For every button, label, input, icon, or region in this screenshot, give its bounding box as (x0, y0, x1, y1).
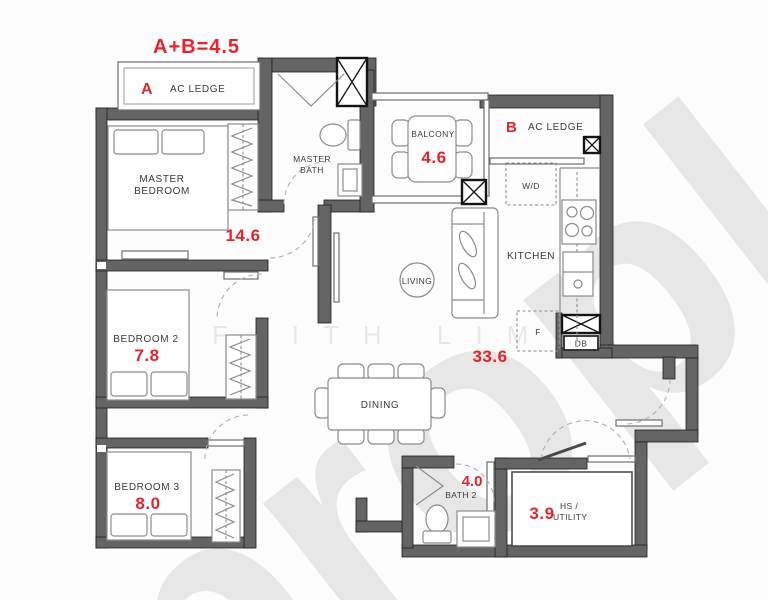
ac-ledge-a-letter: A (141, 81, 153, 98)
master-bath-label-2: BATH (300, 165, 324, 175)
dining-label: DINING (361, 400, 400, 411)
bath2-area: 4.0 (462, 473, 483, 490)
shaft-box (337, 58, 367, 106)
console-table (122, 251, 188, 259)
db-box: DB (564, 336, 598, 350)
wardrobe (212, 470, 240, 542)
balcony-sliding-door (372, 196, 464, 203)
bath2-label: BATH 2 (445, 490, 477, 500)
bathroom-sink (338, 164, 362, 196)
living-area: 33.6 (472, 347, 507, 366)
master-bedroom-area: 14.6 (225, 226, 260, 245)
bathroom-sink (457, 511, 495, 547)
door-arc-bedroom2 (217, 274, 262, 319)
ac-ledge-a-label: AC LEDGE (170, 84, 225, 95)
floor-plan-page: proplex FAITH LIM (0, 0, 768, 600)
shaft-box (584, 137, 600, 153)
door-arc-master-bedroom (270, 219, 315, 258)
bedroom2-bed (107, 290, 189, 400)
toilet (320, 120, 360, 150)
wd-label: W/D (522, 181, 540, 191)
wardrobe (228, 124, 258, 210)
master-bath-label-1: MASTER (293, 154, 331, 164)
floor-plan-svg: proplex FAITH LIM (0, 0, 768, 600)
balcony-parapet-top (372, 93, 488, 100)
master-bedroom-label-1: MASTER (139, 174, 184, 185)
hs-utility-label-2: UTILITY (553, 512, 587, 522)
bedroom2-area: 7.8 (134, 346, 159, 365)
fridge-label: F (535, 327, 541, 337)
kitchen-label: KITCHEN (507, 251, 555, 262)
stove (562, 200, 596, 244)
bedroom2-label: BEDROOM 2 (113, 334, 178, 345)
master-bedroom-label-2: BEDROOM (134, 186, 190, 197)
balcony-label: BALCONY (411, 129, 454, 139)
balcony-area: 4.6 (421, 148, 446, 167)
bedroom3-label: BEDROOM 3 (114, 482, 179, 493)
shaft-box (462, 180, 486, 204)
hs-utility-area: 3.9 (529, 504, 554, 523)
hs-utility-label-1: HS / (560, 501, 578, 511)
ac-ledge-b-letter: B (506, 119, 517, 136)
kitchen-sink (563, 252, 593, 296)
living-label: LIVING (402, 276, 432, 286)
bedroom3-area: 8.0 (135, 494, 160, 513)
sofa (452, 208, 498, 318)
ac-ledge-b-label: AC LEDGE (528, 122, 583, 133)
shaft-box (562, 315, 600, 333)
wardrobe (226, 335, 256, 399)
shower (278, 74, 344, 106)
formula-label: A+B=4.5 (153, 36, 240, 58)
